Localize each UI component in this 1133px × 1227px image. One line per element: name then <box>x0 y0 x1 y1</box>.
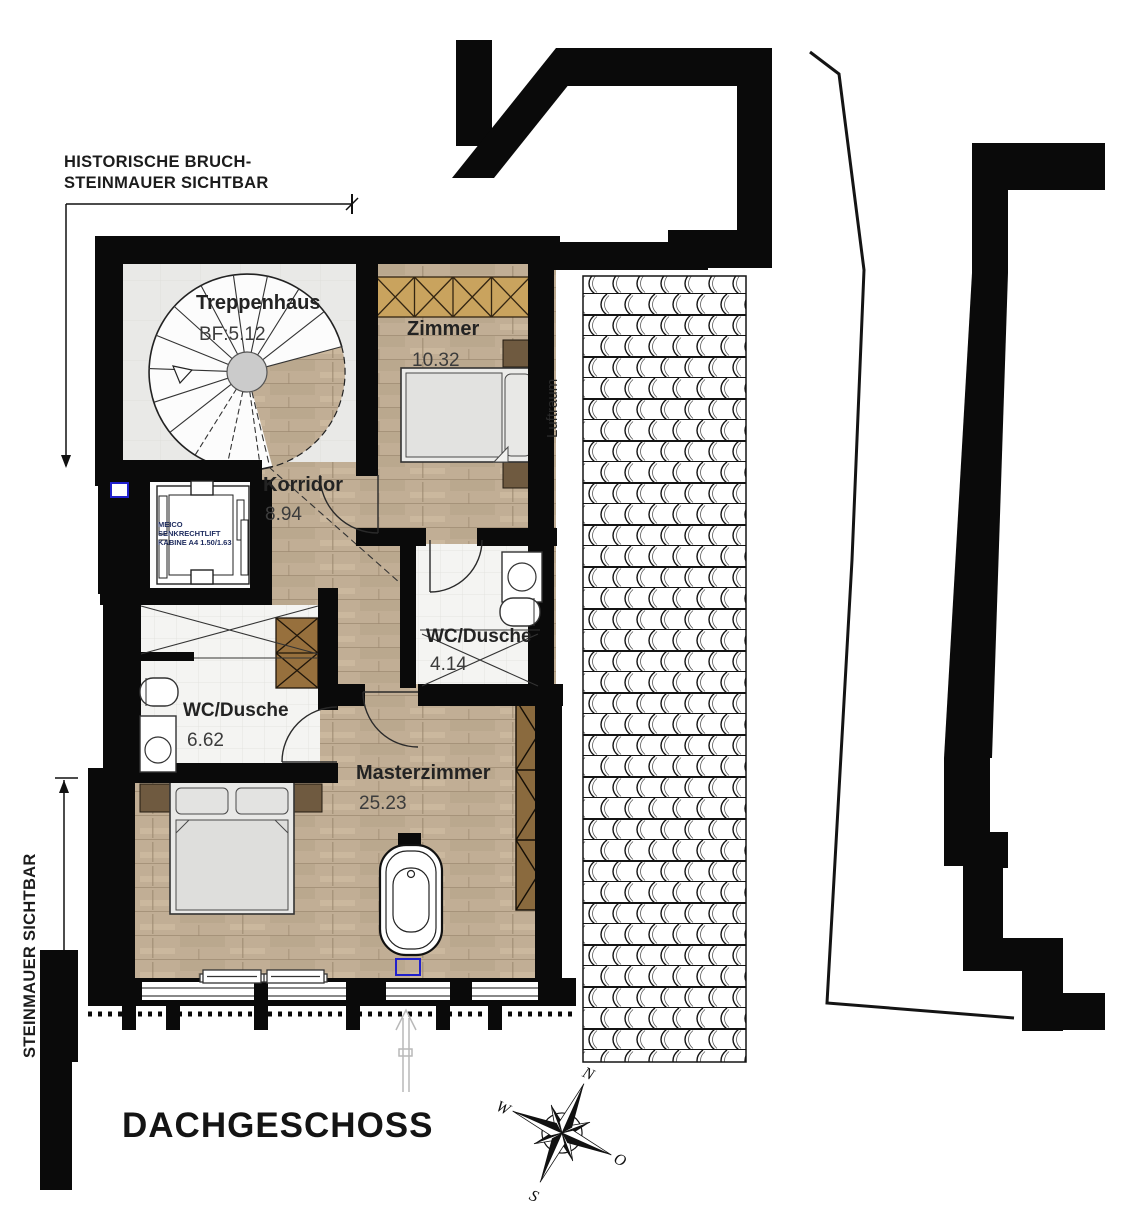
room-area-wc-top: 4.14 <box>430 654 467 676</box>
window <box>142 982 538 1000</box>
lift-marker-blue <box>111 483 128 497</box>
zimmer-wardrobe <box>376 277 530 317</box>
room-label-treppenhaus: Treppenhaus <box>196 292 320 315</box>
wall-posts <box>122 1004 502 1030</box>
wall <box>456 40 492 146</box>
annotation-line1: HISTORISCHE BRUCH- <box>64 152 269 173</box>
room-label-master: Masterzimmer <box>356 762 491 785</box>
room-area-korridor: 8.94 <box>265 504 302 526</box>
compass-cardinal-points <box>491 1062 634 1205</box>
annotation-stone-wall: STEINMAUER SICHTBAR <box>20 853 41 1058</box>
room-label-zimmer: Zimmer <box>407 318 479 341</box>
room-area-zimmer: 10.32 <box>412 350 460 372</box>
floor-plan-page: N O S W HISTORISCHE BRUCH- STEINMAUER SI… <box>0 0 1133 1227</box>
page-title: DACHGESCHOSS <box>122 1106 433 1146</box>
lift-label-line3: KABINE A4 1.50/1.63 <box>158 538 232 547</box>
annotation-historic-wall: HISTORISCHE BRUCH- STEINMAUER SICHTBAR <box>64 152 269 194</box>
entrance-arrow <box>396 1010 416 1092</box>
lift-label-line1: MEICO <box>158 520 232 529</box>
compass-south-label: S <box>527 1187 541 1206</box>
nightstand <box>292 784 322 812</box>
compass-rose: N O S W <box>466 1038 656 1227</box>
zimmer-bed <box>401 368 538 462</box>
bathtub <box>380 833 442 955</box>
annotation-line2: STEINMAUER SICHTBAR <box>64 173 269 194</box>
room-area-master: 25.23 <box>359 793 407 815</box>
room-label-korridor: Korridor <box>263 474 343 497</box>
south-window-wall <box>88 970 576 1030</box>
right-stepped-wall <box>944 143 1105 1031</box>
compass-east-label: O <box>611 1150 629 1170</box>
compass-west-label: W <box>493 1098 514 1120</box>
niche-wardrobe <box>276 618 318 688</box>
luftraum-label: Luftraum <box>544 379 561 438</box>
lift-label: MEICO SENKRECHTLIFT KABINE A4 1.50/1.63 <box>158 520 232 547</box>
room-label-wc-top: WC/Dusche <box>426 626 532 648</box>
room-area-wc-left: 6.62 <box>187 730 224 752</box>
room-label-wc-left: WC/Dusche <box>183 700 289 722</box>
lift-label-line2: SENKRECHTLIFT <box>158 529 232 538</box>
nightstand <box>140 784 170 812</box>
roof-tile-hatch <box>583 276 746 1062</box>
room-area-treppenhaus: BF:5.12 <box>199 324 266 346</box>
compass-north-label: N <box>579 1064 598 1085</box>
